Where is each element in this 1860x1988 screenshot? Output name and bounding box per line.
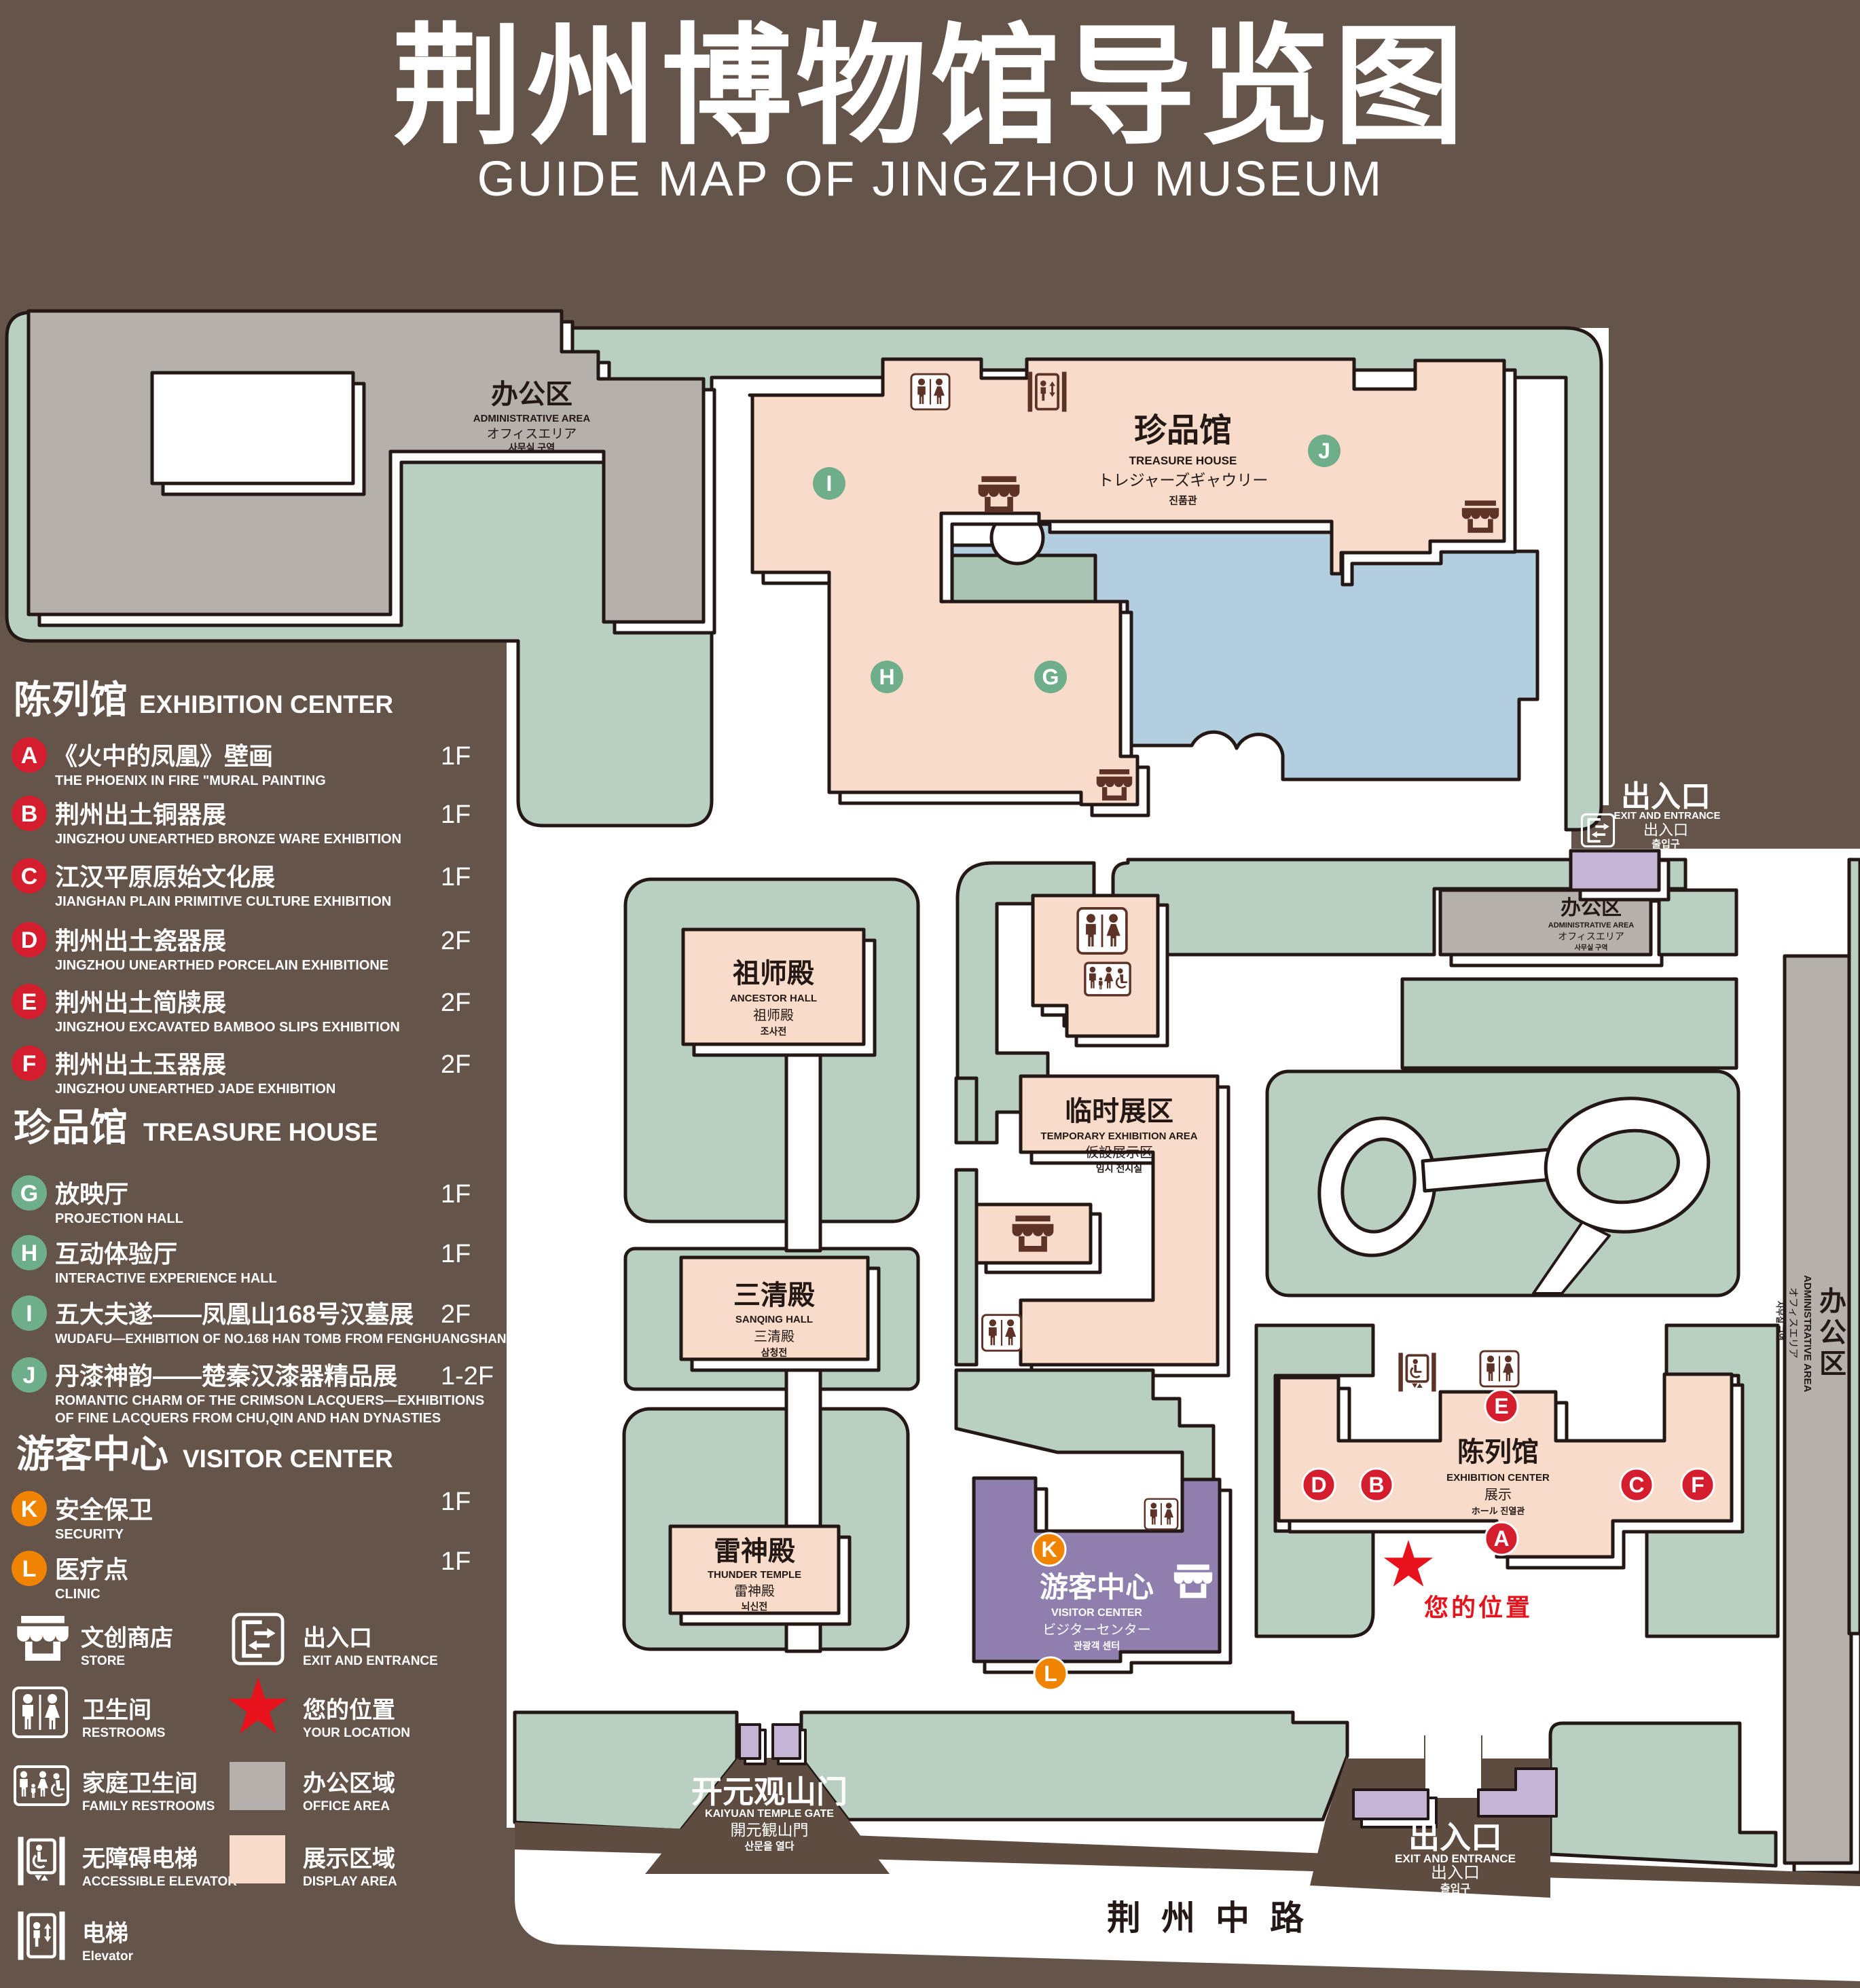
- svg-text:出入口: 出入口: [1643, 822, 1688, 839]
- svg-text:진품관: 진품관: [1169, 495, 1197, 507]
- svg-text:电梯: 电梯: [82, 1921, 128, 1947]
- svg-text:EXIT AND ENTRANCE: EXIT AND ENTRANCE: [303, 1654, 438, 1668]
- svg-text:2F: 2F: [441, 1050, 471, 1079]
- svg-text:出入口: 出入口: [303, 1625, 372, 1651]
- svg-text:五大夫遂——凤凰山168号汉墓展: 五大夫遂——凤凰山168号汉墓展: [55, 1300, 414, 1328]
- svg-text:J: J: [1318, 439, 1330, 463]
- svg-text:荆州出土玉器展: 荆州出土玉器展: [55, 1050, 226, 1078]
- svg-text:珍品馆: 珍品馆: [14, 1106, 128, 1149]
- svg-text:荆州博物馆导览图: 荆州博物馆导览图: [393, 14, 1468, 160]
- svg-text:YOUR LOCATION: YOUR LOCATION: [303, 1726, 410, 1740]
- svg-text:VISITOR CENTER: VISITOR CENTER: [183, 1445, 393, 1473]
- svg-text:임시 전시실: 임시 전시실: [1096, 1163, 1142, 1174]
- svg-text:1F: 1F: [441, 1488, 471, 1516]
- svg-text:江汉平原原始文化展: 江汉平原原始文化展: [55, 863, 275, 891]
- svg-text:雷神殿: 雷神殿: [734, 1583, 775, 1599]
- svg-text:뇌신전: 뇌신전: [742, 1601, 768, 1612]
- svg-text:卫生间: 卫生间: [82, 1697, 151, 1723]
- svg-text:THUNDER TEMPLE: THUNDER TEMPLE: [708, 1569, 801, 1581]
- svg-text:K: K: [1041, 1537, 1057, 1562]
- svg-text:산문을 열다: 산문을 열다: [744, 1841, 794, 1852]
- svg-text:F: F: [1691, 1473, 1704, 1497]
- svg-text:PROJECTION HALL: PROJECTION HALL: [55, 1211, 183, 1226]
- svg-text:GUIDE MAP OF JINGZHOU MUSEUM: GUIDE MAP OF JINGZHOU MUSEUM: [477, 152, 1384, 206]
- svg-text:L: L: [22, 1556, 37, 1582]
- svg-text:THE PHOENIX IN FIRE "MURAL PAI: THE PHOENIX IN FIRE "MURAL PAINTING: [55, 773, 326, 788]
- svg-text:丹漆神韵——楚秦汉漆器精品展: 丹漆神韵——楚秦汉漆器精品展: [55, 1362, 397, 1390]
- svg-text:ANCESTOR HALL: ANCESTOR HALL: [730, 993, 817, 1004]
- svg-text:TEMPORARY EXHIBITION AREA: TEMPORARY EXHIBITION AREA: [1040, 1130, 1197, 1142]
- svg-text:互动体验厅: 互动体验厅: [55, 1240, 177, 1268]
- svg-text:J: J: [23, 1363, 36, 1388]
- svg-text:出入口: 出入口: [1621, 780, 1711, 813]
- svg-text:珍品馆: 珍品馆: [1134, 413, 1232, 449]
- svg-text:JINGZHOU UNEARTHED JADE EXHIBI: JINGZHOU UNEARTHED JADE EXHIBITION: [55, 1082, 335, 1097]
- svg-text:E: E: [22, 989, 37, 1015]
- svg-text:D: D: [1311, 1473, 1326, 1497]
- svg-text:展示区域: 展示区域: [303, 1846, 395, 1872]
- svg-text:I: I: [826, 471, 833, 496]
- svg-text:I: I: [26, 1301, 32, 1327]
- svg-text:JINGZHOU UNEARTHED PORCELAIN E: JINGZHOU UNEARTHED PORCELAIN EXHIBITIONE: [55, 958, 388, 973]
- svg-text:FAMILY RESTROOMS: FAMILY RESTROOMS: [82, 1799, 215, 1814]
- svg-text:区: 区: [1819, 1349, 1846, 1379]
- svg-text:2F: 2F: [441, 1300, 471, 1329]
- svg-text:ADMINISTRATIVE AREA: ADMINISTRATIVE AREA: [1548, 921, 1635, 929]
- svg-text:オフィスエリア: オフィスエリア: [487, 427, 577, 441]
- svg-text:B: B: [21, 801, 38, 827]
- svg-text:사무실 구역: 사무실 구역: [1775, 1301, 1785, 1341]
- svg-text:2F: 2F: [441, 989, 471, 1017]
- svg-text:开元观山门: 开元观山门: [691, 1774, 847, 1809]
- svg-text:1-2F: 1-2F: [441, 1362, 494, 1391]
- svg-text:陈列馆: 陈列馆: [14, 678, 128, 721]
- svg-text:OFFICE AREA: OFFICE AREA: [303, 1799, 390, 1814]
- svg-text:您的位置: 您的位置: [303, 1697, 395, 1723]
- svg-text:陈列馆: 陈列馆: [1457, 1437, 1539, 1467]
- svg-text:オフィスエリア: オフィスエリア: [1558, 931, 1624, 942]
- svg-text:G: G: [1042, 665, 1059, 689]
- svg-text:公: 公: [1819, 1318, 1846, 1348]
- svg-text:EXHIBITION CENTER: EXHIBITION CENTER: [139, 691, 393, 718]
- svg-text:INTERACTIVE EXPERIENCE HALL: INTERACTIVE EXPERIENCE HALL: [55, 1271, 277, 1286]
- svg-text:祖师殿: 祖师殿: [753, 1008, 794, 1023]
- svg-text:雷神殿: 雷神殿: [714, 1536, 795, 1566]
- svg-text:1F: 1F: [441, 1240, 471, 1268]
- svg-text:B: B: [1368, 1473, 1384, 1497]
- svg-text:ビジターセンター: ビジターセンター: [1042, 1622, 1151, 1638]
- svg-text:オフィスエリア: オフィスエリア: [1787, 1287, 1799, 1359]
- svg-text:仮設展示区: 仮設展示区: [1085, 1145, 1153, 1160]
- svg-text:F: F: [22, 1051, 37, 1077]
- svg-text:SANQING HALL: SANQING HALL: [735, 1314, 813, 1325]
- svg-text:出入口: 出入口: [1431, 1864, 1480, 1882]
- svg-text:관광객 센터: 관광객 센터: [1074, 1640, 1120, 1651]
- svg-text:游客中心: 游客中心: [16, 1433, 168, 1475]
- svg-text:VISITOR CENTER: VISITOR CENTER: [1051, 1607, 1142, 1619]
- svg-text:KAIYUAN TEMPLE GATE: KAIYUAN TEMPLE GATE: [705, 1808, 834, 1820]
- svg-text:出入口: 出入口: [1408, 1820, 1502, 1855]
- svg-text:1F: 1F: [441, 863, 471, 891]
- svg-text:ROMANTIC CHARM OF THE CRIMSON: ROMANTIC CHARM OF THE CRIMSON LACQUERS—E…: [55, 1393, 484, 1408]
- svg-text:EXHIBITION CENTER: EXHIBITION CENTER: [1446, 1472, 1550, 1484]
- svg-text:1F: 1F: [441, 1180, 471, 1209]
- svg-text:荆州出土铜器展: 荆州出土铜器展: [55, 800, 226, 828]
- svg-text:ADMINISTRATIVE AREA: ADMINISTRATIVE AREA: [473, 413, 591, 424]
- svg-text:祖师殿: 祖师殿: [733, 959, 814, 989]
- svg-text:H: H: [879, 665, 894, 689]
- svg-text:G: G: [20, 1181, 38, 1207]
- svg-text:A: A: [21, 743, 38, 769]
- svg-text:文创商店: 文创商店: [81, 1625, 173, 1651]
- svg-text:D: D: [21, 927, 38, 953]
- svg-text:RESTROOMS: RESTROOMS: [82, 1726, 165, 1740]
- svg-text:トレジャーズギャウリー: トレジャーズギャウリー: [1098, 471, 1269, 489]
- svg-text:K: K: [21, 1496, 38, 1522]
- svg-text:CLINIC: CLINIC: [55, 1587, 101, 1602]
- svg-text:1F: 1F: [441, 800, 471, 829]
- svg-text:荆州中路: 荆州中路: [1107, 1899, 1324, 1937]
- svg-text:ホール 진열관: ホール 진열관: [1472, 1506, 1525, 1516]
- svg-text:EXIT AND ENTRANCE: EXIT AND ENTRANCE: [1614, 810, 1721, 822]
- svg-text:JINGZHOU EXCAVATED BAMBOO SLIP: JINGZHOU EXCAVATED BAMBOO SLIPS EXHIBITI…: [55, 1020, 400, 1035]
- svg-text:사무실 구역: 사무실 구역: [1575, 943, 1608, 952]
- svg-text:L: L: [1044, 1661, 1057, 1686]
- svg-text:C: C: [21, 864, 38, 889]
- svg-text:C: C: [1628, 1473, 1644, 1497]
- svg-text:Elevator: Elevator: [82, 1949, 134, 1964]
- svg-text:STORE: STORE: [81, 1654, 125, 1668]
- svg-text:家庭卫生间: 家庭卫生间: [82, 1770, 198, 1797]
- svg-text:三清殿: 三清殿: [733, 1281, 815, 1310]
- svg-text:DISPLAY AREA: DISPLAY AREA: [303, 1875, 397, 1889]
- svg-text:1F: 1F: [441, 742, 471, 771]
- svg-text:展示: 展示: [1484, 1488, 1512, 1503]
- svg-text:OF FINE LACQUERS FROM CHU,QIN: OF FINE LACQUERS FROM CHU,QIN AND HAN DY…: [55, 1411, 441, 1426]
- svg-text:三清殿: 三清殿: [754, 1329, 795, 1344]
- svg-text:JINGZHOU UNEARTHED BRONZE WARE: JINGZHOU UNEARTHED BRONZE WARE EXHIBITIO…: [55, 832, 401, 847]
- svg-text:출입구: 출입구: [1440, 1883, 1470, 1895]
- svg-text:您的位置: 您的位置: [1424, 1594, 1533, 1621]
- svg-text:办: 办: [1819, 1287, 1846, 1317]
- svg-text:출입구: 출입구: [1652, 839, 1680, 850]
- svg-text:WUDAFU—EXHIBITION OF NO.168 HA: WUDAFU—EXHIBITION OF NO.168 HAN TOMB FRO…: [55, 1332, 507, 1346]
- svg-text:医疗点: 医疗点: [55, 1556, 128, 1583]
- svg-text:临时展区: 临时展区: [1065, 1097, 1173, 1126]
- svg-text:A: A: [1493, 1526, 1509, 1551]
- svg-text:조사전: 조사전: [761, 1026, 787, 1037]
- svg-text:SECURITY: SECURITY: [55, 1527, 124, 1542]
- svg-text:E: E: [1494, 1394, 1508, 1418]
- svg-text:H: H: [21, 1240, 38, 1266]
- svg-text:TREASURE HOUSE: TREASURE HOUSE: [1129, 454, 1237, 467]
- svg-text:办公区: 办公区: [491, 380, 572, 409]
- svg-text:삼청전: 삼청전: [761, 1347, 788, 1358]
- svg-text:ACCESSIBLE ELEVATOR: ACCESSIBLE ELEVATOR: [82, 1875, 237, 1889]
- svg-text:放映厅: 放映厅: [55, 1180, 128, 1208]
- svg-text:无障碍电梯: 无障碍电梯: [82, 1846, 198, 1872]
- svg-text:JIANGHAN PLAIN PRIMITIVE CULTU: JIANGHAN PLAIN PRIMITIVE CULTURE EXHIBIT…: [55, 894, 391, 909]
- svg-text:ADMINISTRATIVE AREA: ADMINISTRATIVE AREA: [1802, 1275, 1813, 1393]
- svg-text:開元観山門: 開元観山門: [731, 1821, 809, 1839]
- svg-text:《火中的凤凰》壁画: 《火中的凤凰》壁画: [53, 742, 273, 770]
- svg-text:安全保卫: 安全保卫: [55, 1496, 153, 1524]
- svg-text:荆州出土瓷器展: 荆州出土瓷器展: [55, 927, 226, 955]
- svg-text:2F: 2F: [441, 927, 471, 955]
- svg-text:办公区域: 办公区域: [303, 1771, 395, 1797]
- svg-text:游客中心: 游客中心: [1040, 1571, 1154, 1603]
- svg-text:TREASURE HOUSE: TREASURE HOUSE: [143, 1118, 378, 1146]
- svg-text:荆州出土简牍展: 荆州出土简牍展: [55, 989, 226, 1016]
- svg-text:1F: 1F: [441, 1547, 471, 1576]
- svg-text:사무실 구역: 사무실 구역: [509, 442, 555, 453]
